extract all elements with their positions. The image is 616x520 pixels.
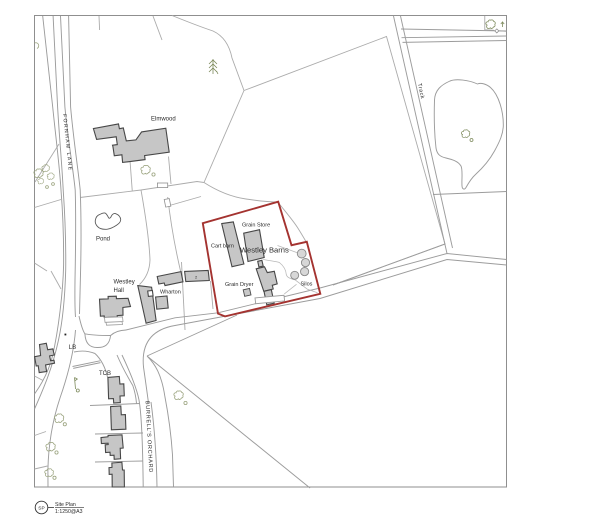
svg-text:Silos: Silos <box>301 282 313 288</box>
svg-text:Grain Dryer: Grain Dryer <box>225 282 254 288</box>
svg-text:1:1250@A3: 1:1250@A3 <box>55 509 83 515</box>
svg-text:Westley Barns: Westley Barns <box>240 246 289 255</box>
svg-text:Elmwood: Elmwood <box>151 117 176 123</box>
svg-text:LB: LB <box>69 345 76 351</box>
svg-text:SP: SP <box>38 506 44 512</box>
svg-text:TCB: TCB <box>99 371 111 377</box>
svg-text:Cart barn: Cart barn <box>211 244 234 250</box>
svg-text:Pond: Pond <box>96 237 110 243</box>
svg-text:Wharton: Wharton <box>160 290 181 296</box>
svg-text:Grain Store: Grain Store <box>242 223 270 229</box>
svg-text:Westley: Westley <box>114 280 135 286</box>
svg-text:Hall: Hall <box>114 288 124 294</box>
